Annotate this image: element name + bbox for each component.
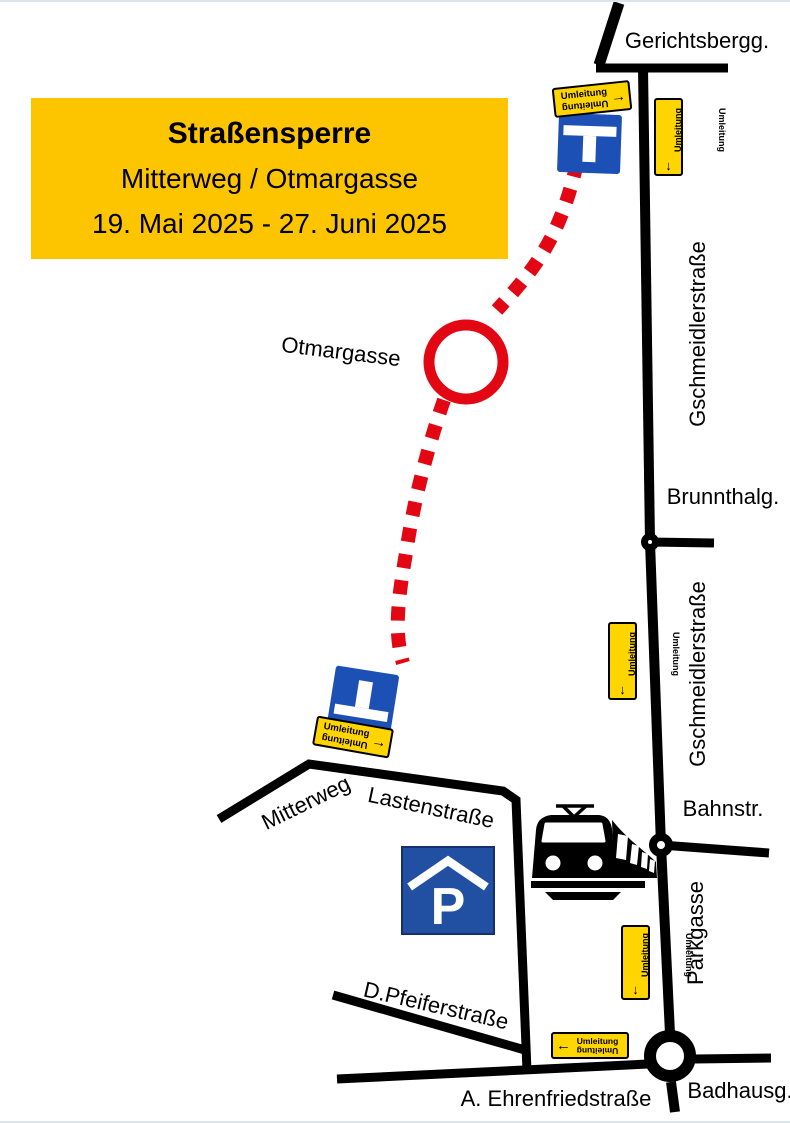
road-gerichtsbergg-ramp [599, 3, 619, 65]
arrow-down-icon: ↓ [619, 683, 626, 698]
detour-sign-vertical-gerichtsbergg: Umleitung Umleitung ↓ [654, 98, 683, 176]
road-below-roundabout [671, 1082, 675, 1112]
detour-label-column: Umleitung [610, 624, 654, 683]
road-brunnthalgasse [650, 542, 714, 543]
detour-label-column: Umleitung [656, 100, 700, 159]
detour-label: Umleitung [640, 933, 650, 977]
street-label-brunnthalgasse: Brunnthalg. [667, 484, 780, 510]
roundabout-badhausgasse [650, 1036, 690, 1076]
detour-sign-text: Umleitung Umleitung [623, 927, 648, 983]
detour-sign-text: Umleitung Umleitung [557, 87, 612, 112]
closed-road-dashes-lower [398, 400, 444, 663]
closure-streets: Mitterweg / Otmargasse [121, 165, 418, 193]
road-badhausgasse [695, 1058, 771, 1059]
detour-label-column: Umleitung [623, 927, 667, 983]
detour-sign-roundabout: ← Umleitung Umleitung [551, 1032, 629, 1059]
arrow-left-icon: ← [556, 1038, 571, 1053]
detour-sign-vertical-gschmeidlerstrasse: Umleitung Umleitung ↓ [608, 622, 637, 700]
detour-label-column-mirrored: Umleitung [654, 624, 698, 683]
detour-label: Umleitung [571, 1036, 624, 1046]
closure-circle-otmargasse [429, 325, 503, 399]
street-label-ehrenfriedstrasse: A. Ehrenfriedstraße [461, 1086, 652, 1112]
detour-sign-text: Umleitung Umleitung [318, 721, 374, 750]
street-label-badhausgasse: Badhausg. [687, 1078, 790, 1104]
parking-garage-sign: P [401, 846, 495, 935]
dead-end-sign-stem [582, 136, 597, 163]
junction-bahnstrasse [653, 837, 669, 853]
detour-label-mirrored: Umleitung [671, 632, 681, 676]
street-label-bahnstrasse: Bahnstr. [683, 796, 764, 822]
detour-sign-vertical-parkgasse: Umleitung Umleitung ↓ [621, 925, 650, 1000]
detour-label-mirrored: Umleitung [717, 108, 727, 152]
road-ehrenfriedstrasse [337, 1064, 648, 1079]
street-label-gerichtsbergg: Gerichtsbergg. [625, 28, 769, 54]
arrow-right-icon: → [610, 88, 626, 104]
detour-sign-text: Umleitung Umleitung [656, 100, 681, 159]
arrow-down-icon: ↓ [632, 983, 639, 998]
dead-end-sign-stem [355, 680, 373, 709]
closed-road-dashes-upper [497, 163, 577, 310]
parking-letter: P [431, 887, 466, 927]
closure-title: Straßensperre [168, 119, 371, 149]
detour-label-column-mirrored: Umleitung [667, 927, 711, 983]
arrow-right-icon: → [370, 733, 387, 750]
detour-label: Umleitung [627, 632, 637, 676]
detour-label-mirrored: Umleitung [571, 1046, 624, 1056]
detour-sign-text: Umleitung Umleitung [610, 624, 635, 683]
street-label-gschmeidlerstrasse-upper: Gschmeidlerstraße [685, 241, 711, 427]
detour-sign-text: Umleitung Umleitung [571, 1036, 624, 1056]
junction-brunnthalgasse [645, 537, 656, 548]
detour-label-mirrored: Umleitung [684, 933, 694, 977]
closure-dates: 19. Mai 2025 - 27. Juni 2025 [92, 210, 447, 238]
detour-label: Umleitung [673, 108, 683, 152]
road-gschmeidlerstrasse-parkgasse [643, 68, 670, 1034]
road-closure-map: Straßensperre Mitterweg / Otmargasse 19.… [0, 0, 790, 1123]
closure-notice-box: Straßensperre Mitterweg / Otmargasse 19.… [31, 98, 508, 259]
road-bahnstrasse [661, 845, 769, 853]
dead-end-sign-icon-top [557, 113, 622, 174]
arrow-down-icon: ↓ [665, 159, 672, 174]
train-icon [531, 806, 657, 900]
detour-label-column-mirrored: Umleitung [700, 100, 744, 159]
